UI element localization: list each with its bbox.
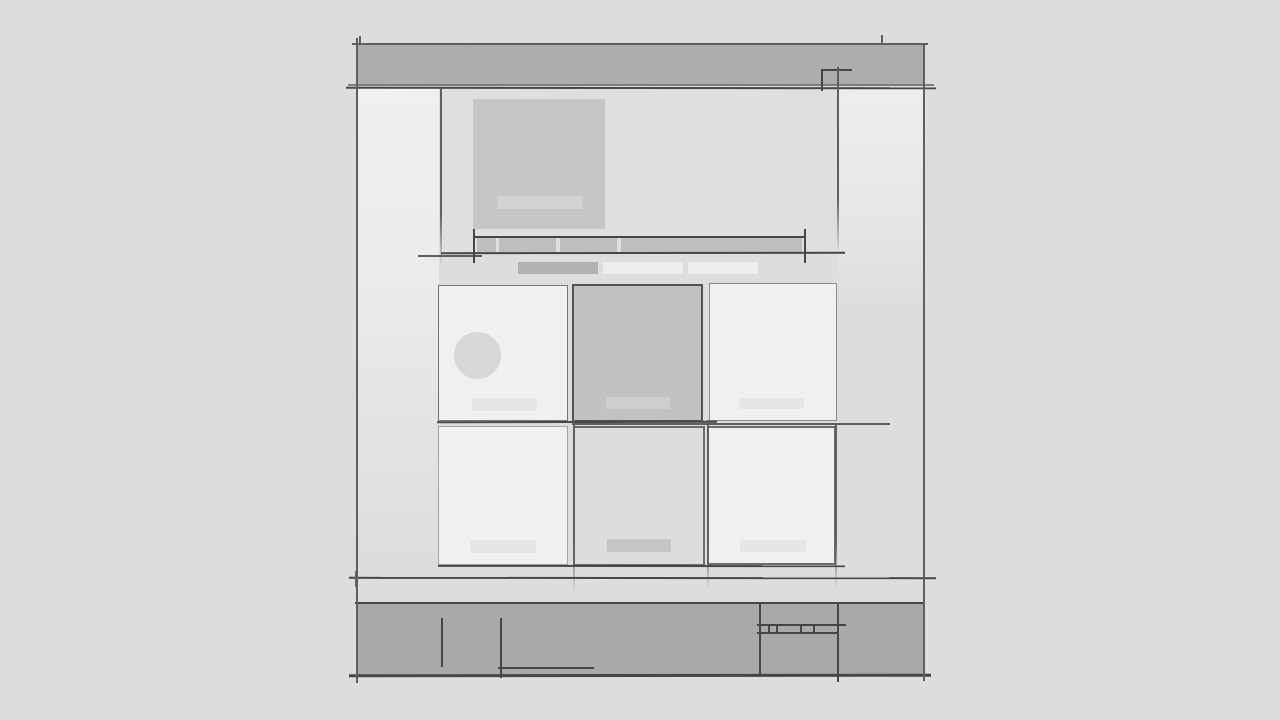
right-margin-highlight [839, 88, 923, 308]
footer-stroke-vertical-2 [500, 618, 502, 678]
card-r2c1 [438, 426, 568, 565]
header-bottom-inner-line [348, 84, 934, 86]
footer-stroke-horizontal [498, 667, 594, 669]
left-margin-highlight [358, 88, 439, 558]
wireframe-canvas [0, 0, 1280, 720]
header-corner-mark-vertical [821, 69, 823, 91]
header-top-tick-left [359, 36, 361, 45]
nav-strip-segment-2 [499, 238, 556, 252]
footer-bottom-line [349, 674, 931, 678]
right-guide-line [837, 67, 839, 252]
nav-strip-segment-3 [560, 238, 617, 252]
footer-column-line-2 [837, 603, 839, 682]
nav-strip-bottom-line [441, 252, 845, 254]
card-label-placeholder [606, 397, 670, 409]
footer-mini-table-divider-2 [776, 624, 778, 634]
card-label-placeholder [470, 540, 536, 553]
card-label-placeholder [739, 398, 804, 409]
page-left-edge [356, 38, 358, 683]
nav-strip-top-line [474, 236, 805, 238]
card-r1c1 [438, 285, 568, 421]
hero-image-placeholder [473, 99, 605, 229]
header-top-tick-right [881, 35, 883, 45]
nav-strip-bracket-left [473, 229, 475, 263]
row-divider-stroke-2 [572, 423, 890, 425]
footer-column-line-1 [759, 603, 761, 675]
header-top-line [352, 43, 928, 45]
nav-strip-segment-1 [477, 238, 496, 252]
card-r1c3 [709, 283, 837, 421]
card-r2c2 [573, 426, 705, 566]
card-r2c3 [707, 426, 836, 565]
left-guide-line [440, 88, 442, 267]
footer-mini-table-divider-4 [813, 624, 815, 634]
card-label-placeholder [607, 539, 671, 552]
nav-strip-bracket-right [804, 229, 806, 263]
nav-strip-segment-4 [621, 238, 802, 252]
footer-mini-table-divider-1 [768, 624, 770, 634]
chip-light-2 [688, 262, 758, 274]
card-r1c2 [572, 284, 703, 422]
footer-stroke-vertical-1 [441, 618, 443, 667]
footer-mini-table-divider-3 [800, 624, 802, 634]
card-label-placeholder [472, 398, 537, 411]
grid-bottom-stroke [438, 565, 845, 567]
content-footer-separator [349, 577, 936, 579]
avatar-circle-placeholder [454, 332, 501, 379]
footer-top-line [355, 602, 925, 604]
chip-light-1 [603, 262, 683, 274]
grid-guide-line-3 [835, 425, 837, 588]
page-right-edge [923, 43, 925, 681]
hero-caption-placeholder [497, 196, 583, 209]
card-label-placeholder [740, 540, 806, 552]
chip-dark [518, 262, 598, 274]
